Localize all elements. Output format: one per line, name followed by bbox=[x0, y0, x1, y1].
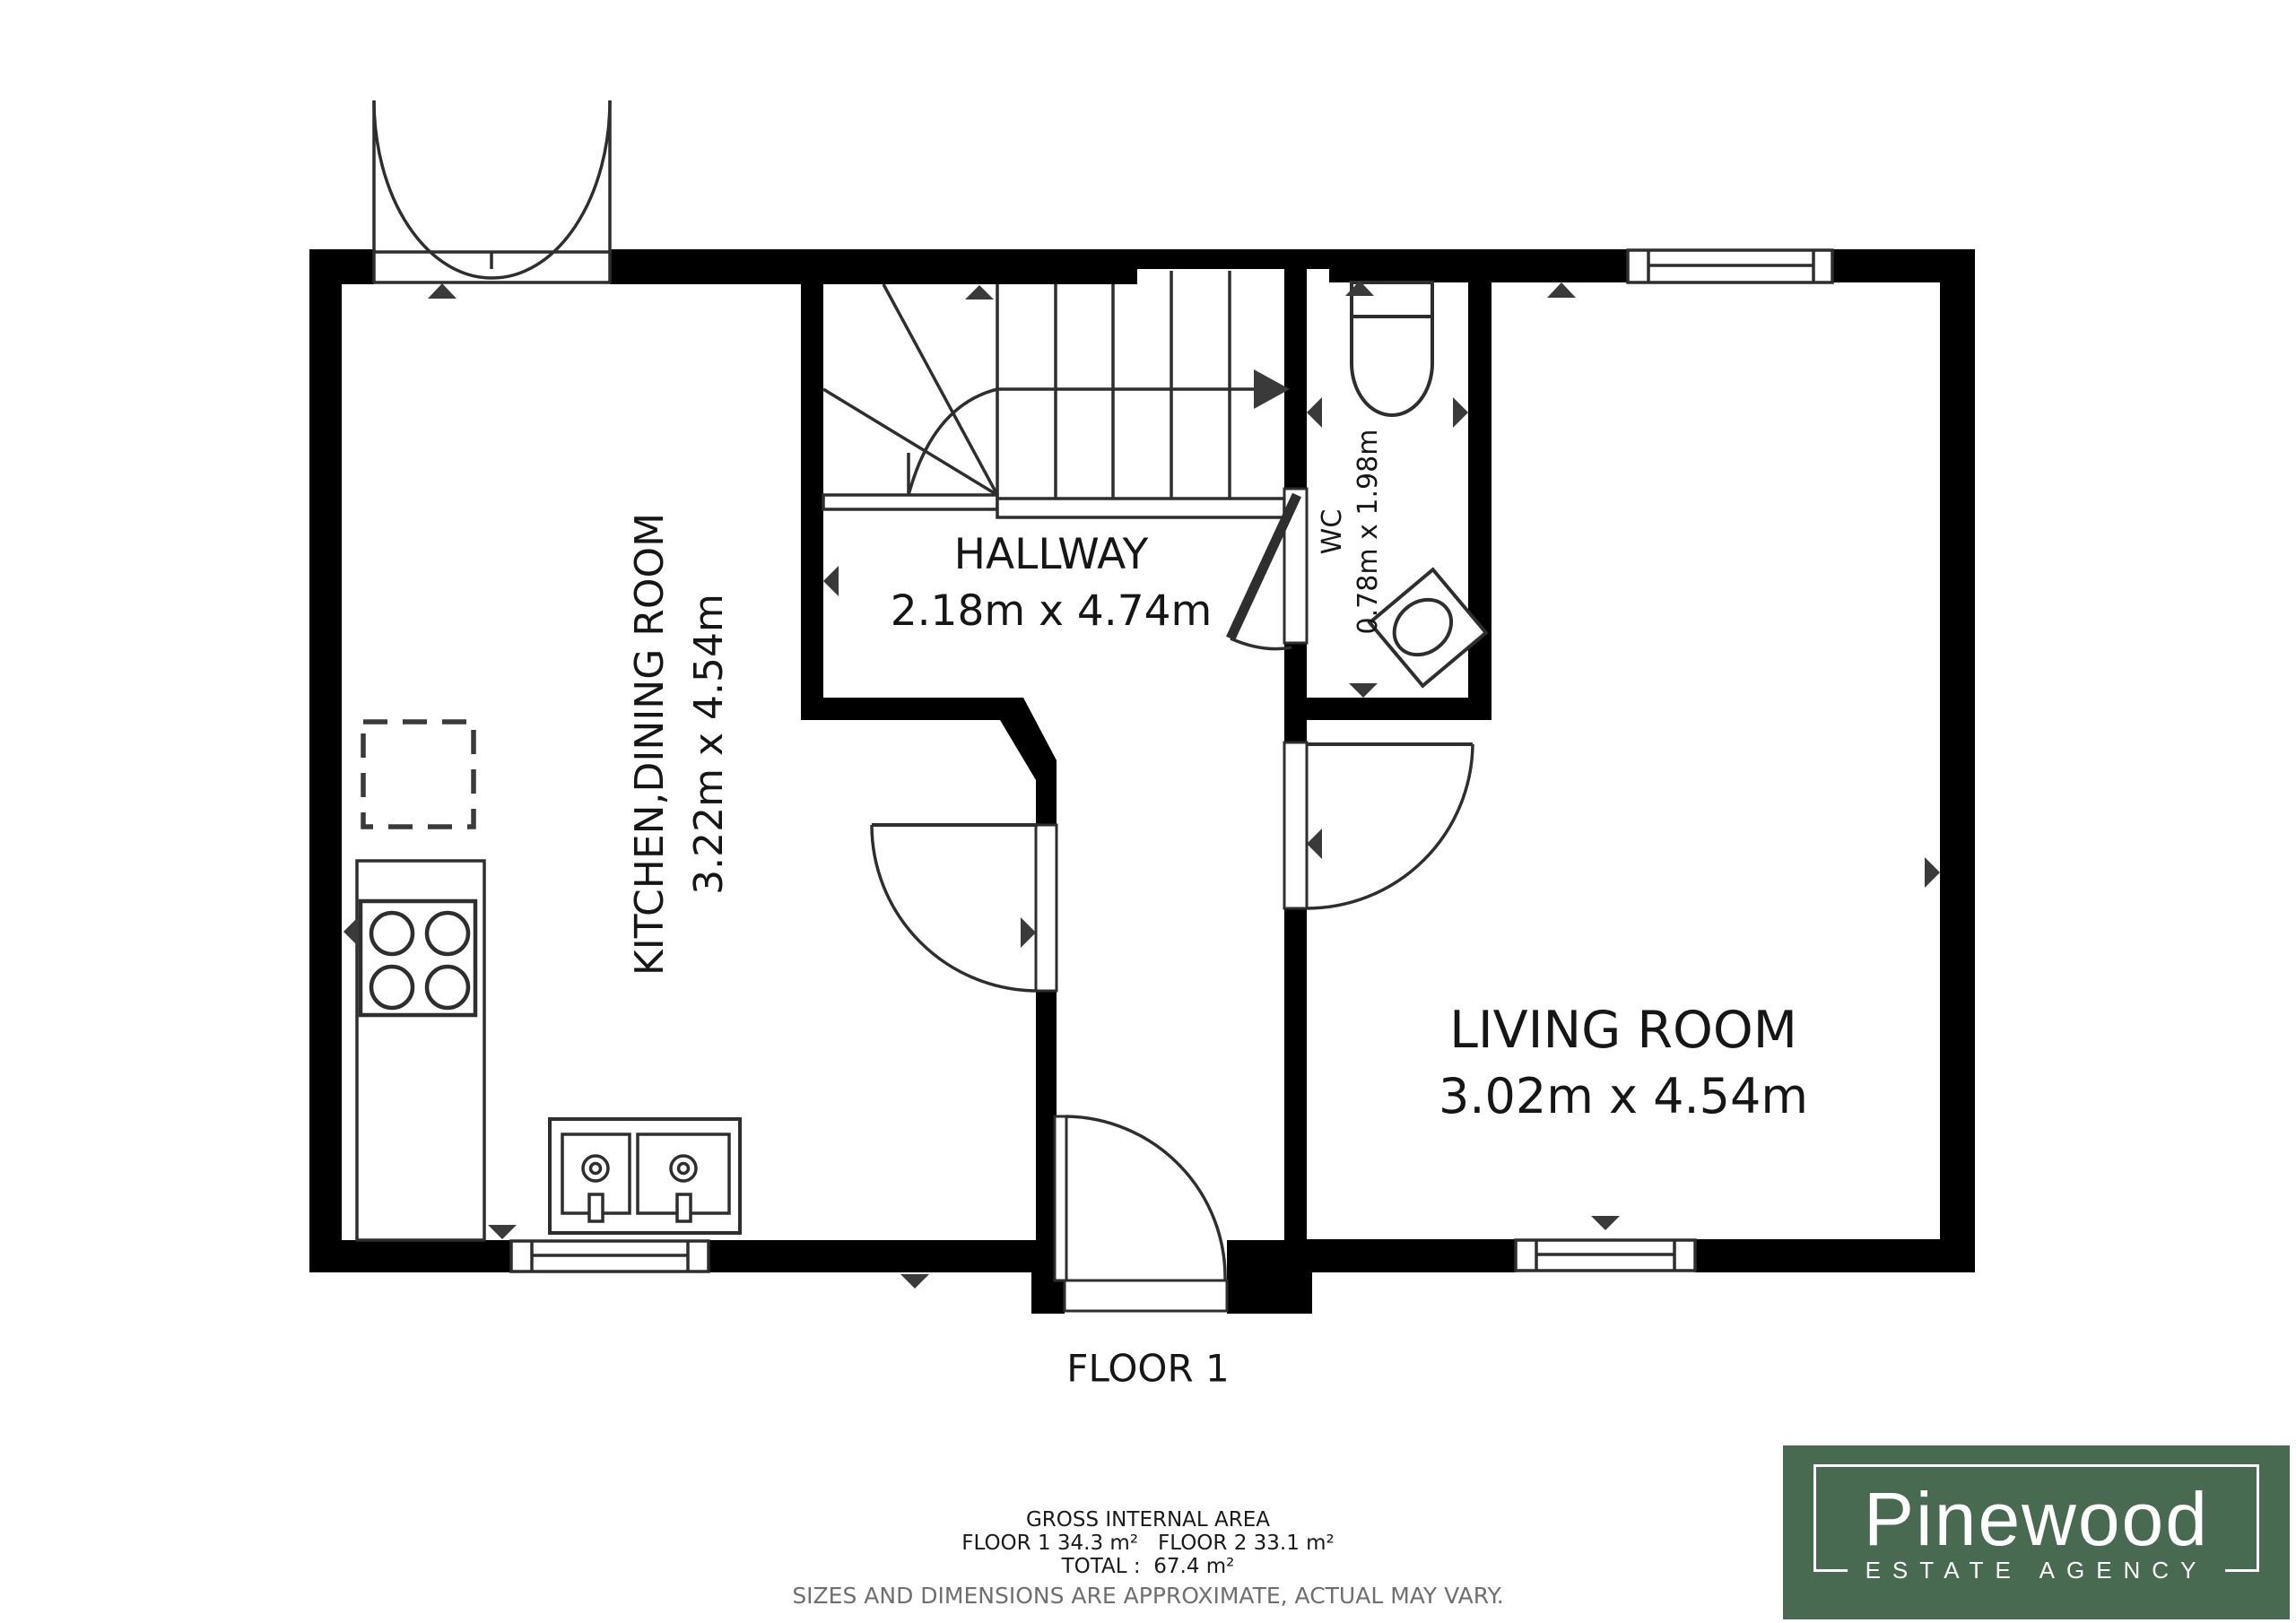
living-room-door bbox=[1284, 742, 1473, 908]
marker-down-icon bbox=[1349, 683, 1378, 698]
marker-left-icon bbox=[823, 566, 839, 596]
room-name: HALLWAY bbox=[891, 526, 1213, 583]
agency-logo: ESTATE AGENCY Pinewood bbox=[1783, 1445, 2290, 1619]
toilet-icon bbox=[1352, 282, 1432, 415]
marker-down-icon bbox=[900, 1274, 929, 1289]
marker-left-icon bbox=[1307, 397, 1322, 428]
living-room-top-window bbox=[1628, 250, 1832, 282]
marker-down-icon bbox=[488, 1225, 517, 1239]
french-doors bbox=[374, 100, 610, 282]
stair-landing-left bbox=[823, 495, 997, 509]
floorplan-page: KITCHEN,DINING ROOM 3.22m x 4.54m HALLWA… bbox=[0, 0, 2296, 1623]
room-label-kitchen: KITCHEN,DINING ROOM 3.22m x 4.54m bbox=[621, 513, 739, 976]
wall-living-bottom-b bbox=[1695, 1239, 1940, 1272]
kitchen-door bbox=[872, 825, 1057, 991]
fixtures bbox=[357, 282, 1486, 1240]
kitchen-sink-icon bbox=[550, 1119, 740, 1233]
living-room-window bbox=[1516, 1240, 1695, 1271]
wall-kitchen-hallway bbox=[801, 282, 823, 720]
wall-left bbox=[309, 249, 342, 1272]
room-dims: 0.78m x 1.98m bbox=[1351, 430, 1387, 635]
wall-wc-bottom bbox=[1307, 698, 1492, 720]
front-door bbox=[1055, 1116, 1227, 1311]
wall-vestibule-left bbox=[1031, 1272, 1057, 1314]
logo-brand: Pinewood bbox=[1783, 1454, 2290, 1584]
wall-hall-right-a bbox=[1284, 269, 1307, 489]
wall-hall-right-b bbox=[1284, 643, 1307, 742]
wall-wc-right bbox=[1468, 282, 1492, 720]
marker-left-icon bbox=[1307, 829, 1322, 859]
marker-up-icon bbox=[965, 285, 994, 299]
wall-top-notch bbox=[1137, 249, 1329, 269]
room-label-hallway: HALLWAY 2.18m x 4.74m bbox=[891, 526, 1213, 639]
floor-label: FLOOR 1 bbox=[1066, 1347, 1229, 1391]
marker-left-icon bbox=[344, 916, 359, 947]
marker-right-icon bbox=[1453, 397, 1468, 428]
wall-kitchen-jog bbox=[801, 698, 1000, 720]
wall-kitchen-bottom-b bbox=[709, 1240, 1057, 1272]
marker-up-icon bbox=[1547, 282, 1576, 298]
wall-top-right-a bbox=[1329, 249, 1628, 282]
wall-right bbox=[1940, 249, 1975, 1272]
winder-line-1 bbox=[883, 284, 997, 495]
room-name: WC bbox=[1315, 430, 1351, 635]
stair-landing-right bbox=[997, 499, 1284, 517]
marker-up-icon bbox=[428, 283, 457, 299]
wall-hall-right-c bbox=[1284, 908, 1307, 1280]
room-name: LIVING ROOM bbox=[1439, 998, 1808, 1063]
marker-right-icon bbox=[1021, 917, 1036, 948]
room-dims: 2.18m x 4.74m bbox=[891, 583, 1213, 639]
wall-diagonal bbox=[1000, 698, 1057, 825]
wall-top-mid bbox=[610, 249, 1137, 284]
marker-down-icon bbox=[1591, 1216, 1620, 1230]
room-label-living: LIVING ROOM 3.02m x 4.54m bbox=[1439, 998, 1808, 1129]
room-name: KITCHEN,DINING ROOM bbox=[621, 513, 680, 976]
winder-line-2 bbox=[823, 389, 997, 495]
marker-right-icon bbox=[1925, 857, 1940, 888]
room-dims: 3.02m x 4.54m bbox=[1439, 1063, 1808, 1129]
wall-kitchen-bottom-a bbox=[309, 1240, 511, 1272]
winder-curve bbox=[909, 389, 997, 495]
kitchen-window bbox=[511, 1241, 709, 1271]
appliance-dashed-icon bbox=[363, 722, 474, 827]
staircase bbox=[823, 271, 1290, 517]
wall-living-bottom-a bbox=[1307, 1239, 1516, 1272]
room-dims: 3.22m x 4.54m bbox=[680, 513, 739, 976]
room-label-wc: WC 0.78m x 1.98m bbox=[1315, 430, 1387, 635]
